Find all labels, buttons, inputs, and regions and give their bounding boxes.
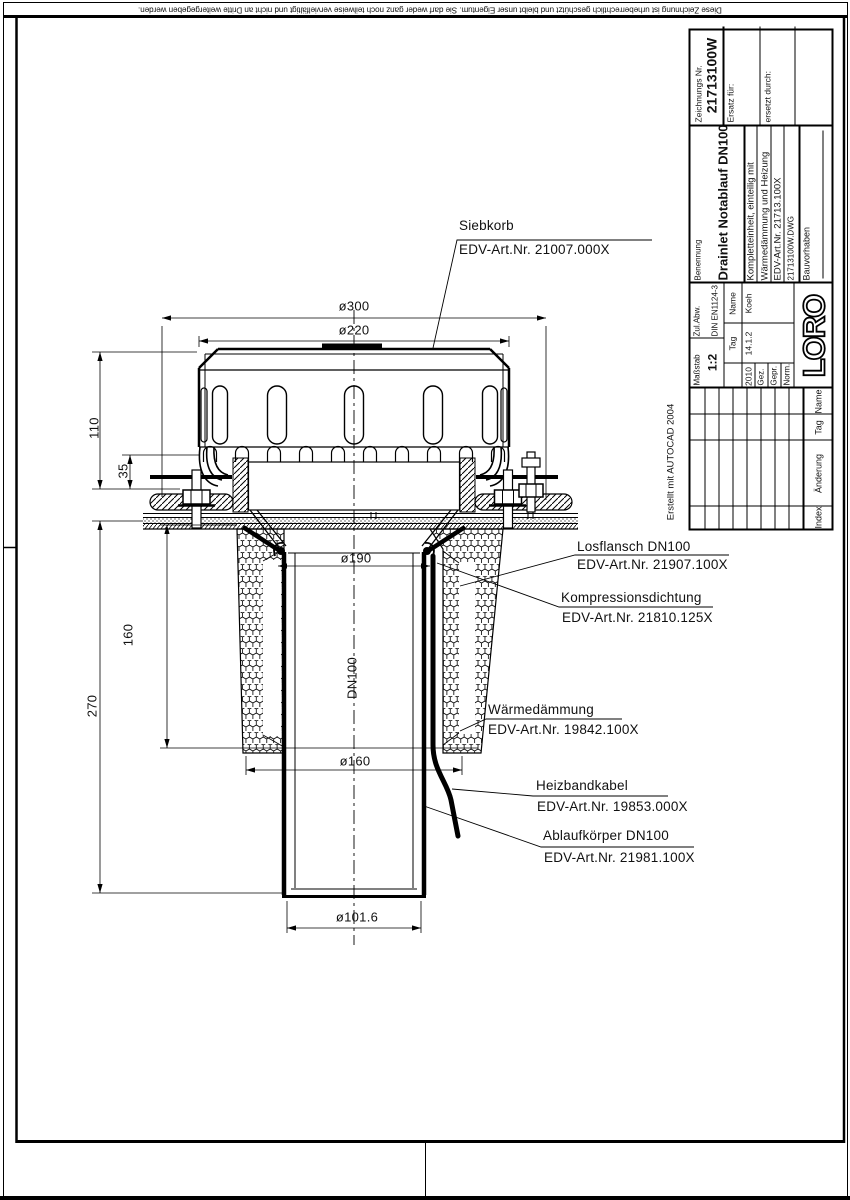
dim-270: 270 (85, 695, 100, 718)
insulation (160, 529, 503, 753)
dim-110: 110 (87, 417, 102, 439)
massstab-value: 1:2 (705, 353, 719, 370)
label-waermedaemmung-partno: EDV-Art.Nr. 19842.100X (488, 722, 639, 737)
divider (690, 281, 831, 283)
gepr-label: Gepr. (769, 365, 778, 385)
tag-header: Tag (727, 336, 737, 350)
desc-line-1: Kompletteinheit, einteilig mit (745, 162, 756, 280)
label-waermedaemmung: Wärmedämmung (488, 702, 594, 717)
zul-abw-value: DIN EN1124-3 (710, 285, 719, 336)
divider (793, 283, 794, 388)
rev-tag-header: Tag (813, 420, 823, 435)
divider (723, 283, 724, 388)
rev-name-header: Name (813, 389, 823, 413)
dim-d300: ø300 (339, 299, 370, 314)
divider (690, 124, 831, 126)
label-ablaufkoerper-partno: EDV-Art.Nr. 21981.100X (544, 850, 695, 865)
divider (746, 388, 747, 528)
label-siebkorb: Siebkorb (459, 218, 514, 233)
divider (794, 26, 795, 126)
label-ablaufkoerper: Ablaufkörper DN100 (543, 828, 669, 843)
date-value: 14.1.2 (743, 331, 753, 355)
divider (732, 388, 733, 528)
dim-160: 160 (121, 624, 136, 647)
label-heizbandkabel: Heizbandkabel (536, 778, 628, 793)
divider (759, 26, 760, 126)
ersatz-fuer-label: Ersatz für: (725, 83, 735, 122)
divider (754, 363, 755, 388)
rev-aenderung-header: Änderung (813, 453, 823, 492)
year-value: 2010 (743, 367, 753, 386)
created-with-note: Erstellt mit AUTOCAD 2004 (666, 404, 677, 521)
divider (723, 322, 793, 323)
label-losflansch: Losflansch DN100 (577, 539, 691, 554)
label-losflansch-partno: EDV-Art.Nr. 21907.100X (577, 557, 728, 572)
loro-logo-text: LORO (796, 294, 831, 376)
rev-index-header: Index (813, 506, 823, 528)
benennung-value: Drainlet Notablauf DN100 (715, 124, 730, 280)
dim-d220: ø220 (339, 323, 370, 338)
divider (770, 126, 771, 283)
title-block: Index Änderung Tag Name Maßstab 1:2 Zul.… (688, 28, 833, 530)
zul-abw-label: Zul.Abw. (692, 305, 701, 336)
divider (704, 388, 705, 528)
dim-35: 35 (116, 463, 131, 478)
label-siebkorb-partno: EDV-Art.Nr. 21007.000X (459, 242, 610, 257)
divider (798, 126, 800, 283)
ersetzt-durch-label: ersetzt durch: (762, 71, 772, 123)
divider (760, 388, 761, 528)
dim-d190: ø190 (341, 551, 372, 566)
zeichnungs-nr-label: Zeichnungs Nr. (693, 65, 703, 122)
flange-assembly (150, 447, 572, 528)
name-header: Name (727, 292, 737, 315)
drawing-sheet: Diese Zeichnung ist urheberrechtlich ges… (0, 0, 850, 1200)
divider (802, 388, 804, 528)
divider (718, 388, 719, 528)
copyright-notice: Diese Zeichnung ist urheberrechtlich ges… (138, 6, 722, 15)
dim-d160: ø160 (340, 754, 371, 769)
label-kompressionsdichtung: Kompressionsdichtung (561, 590, 702, 605)
loro-logo: LORO (795, 286, 833, 386)
bauvorhaben-label: Bauvorhaben (801, 226, 811, 280)
divider (767, 363, 768, 388)
label-kompressionsdichtung-partno: EDV-Art.Nr. 21810.125X (562, 610, 713, 625)
benennung-label: Benennung (693, 239, 702, 280)
norm-label: Norm. (782, 363, 791, 385)
divider (741, 283, 742, 388)
desc-line-4: 21713100W.DWG (786, 216, 795, 280)
label-heizbandkabel-partno: EDV-Art.Nr. 19853.000X (537, 799, 688, 814)
dim-dn100: DN100 (345, 657, 360, 699)
divider (774, 388, 775, 528)
drawn-name-value: Koeh (743, 293, 753, 313)
dim-d101-6: ø101.6 (336, 910, 378, 925)
divider (780, 363, 781, 388)
divider (722, 26, 724, 126)
divider (690, 337, 723, 338)
desc-line-3: EDV-Art.Nr. 21713.100X (772, 177, 783, 280)
gez-label: Gez. (756, 368, 765, 385)
zeichnungs-nr-value: 21713100W (703, 37, 719, 113)
divider (788, 388, 789, 528)
bauvorhaben-line (822, 130, 823, 278)
desc-line-2: Wärmedämmung und Heizung (759, 151, 770, 280)
massstab-label: Maßstab (692, 354, 701, 385)
